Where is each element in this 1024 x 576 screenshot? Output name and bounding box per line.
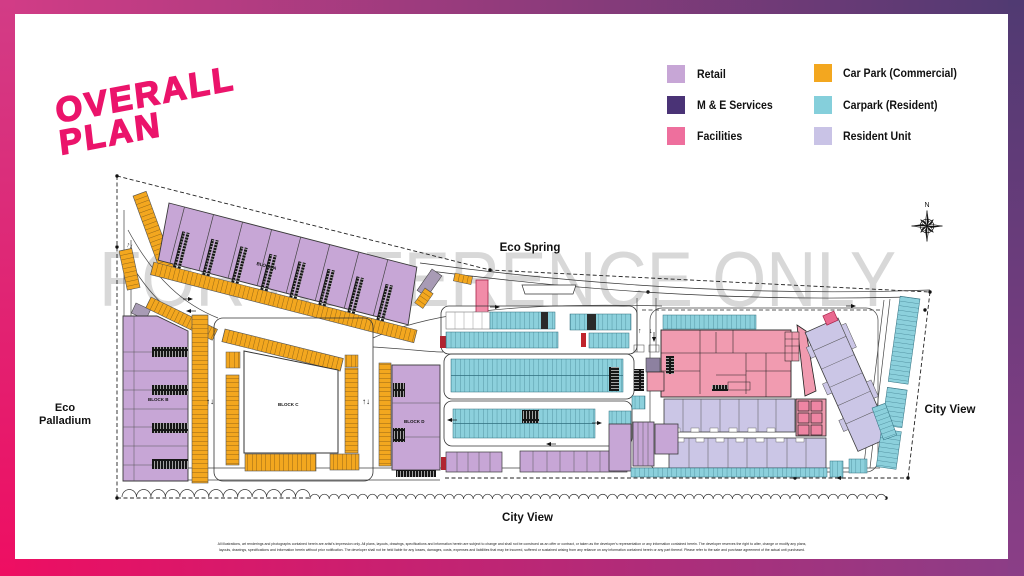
svg-text:↑↓: ↑↓ bbox=[362, 397, 370, 406]
svg-text:BLOCK D: BLOCK D bbox=[404, 419, 425, 424]
svg-text:↑: ↑ bbox=[638, 328, 642, 335]
svg-text:N: N bbox=[924, 202, 929, 209]
svg-text:↑↓: ↑↓ bbox=[206, 397, 214, 406]
svg-text:BLOCK C: BLOCK C bbox=[278, 402, 299, 407]
svg-text:↓: ↓ bbox=[649, 328, 653, 335]
svg-text:BLOCK B: BLOCK B bbox=[148, 397, 169, 402]
